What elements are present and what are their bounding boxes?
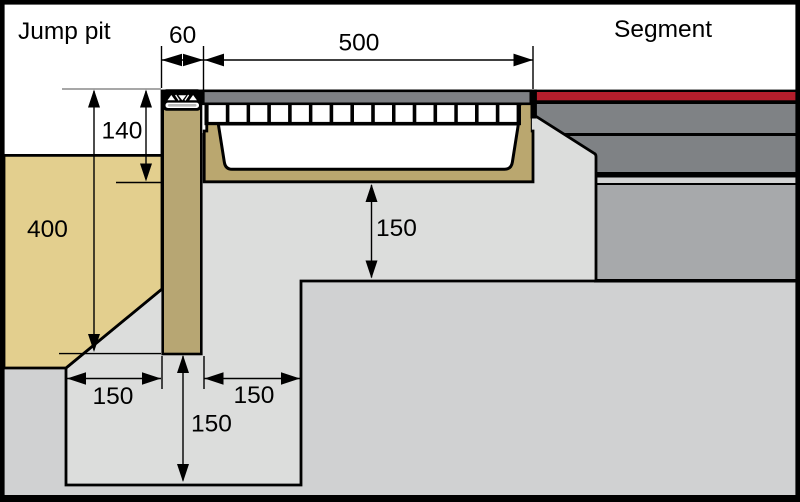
svg-text:Segment: Segment — [614, 16, 712, 43]
svg-text:150: 150 — [376, 215, 417, 242]
svg-text:140: 140 — [102, 118, 143, 145]
svg-text:150: 150 — [93, 383, 134, 410]
svg-text:Jump pit: Jump pit — [18, 18, 111, 45]
svg-text:150: 150 — [234, 382, 275, 409]
svg-text:150: 150 — [191, 411, 232, 438]
svg-text:60: 60 — [169, 22, 196, 49]
svg-text:400: 400 — [27, 216, 68, 243]
svg-text:500: 500 — [339, 30, 380, 57]
